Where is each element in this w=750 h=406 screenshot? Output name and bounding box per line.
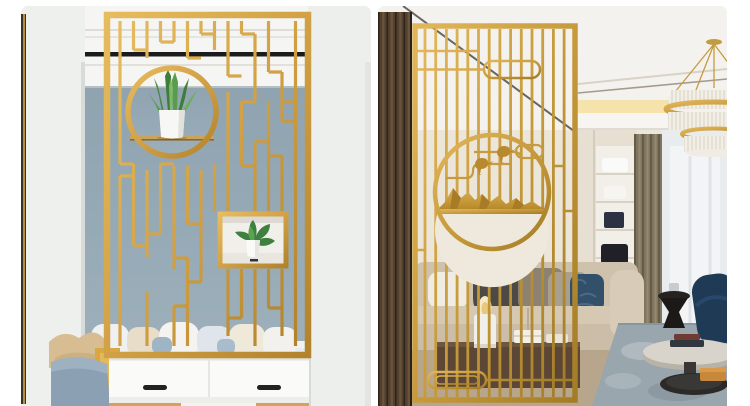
- drawer-handle: [257, 385, 281, 390]
- folded-towels: [602, 158, 628, 172]
- left-photo-bedroom-screen: [21, 6, 371, 406]
- drawer-handle: [143, 385, 167, 390]
- right-photo-scene: [378, 6, 727, 406]
- drawer-cabinet: [109, 358, 309, 406]
- product-photo-pair: [0, 0, 750, 406]
- wood-slat-wall: [378, 12, 412, 406]
- right-photo-livingroom-screen: [378, 6, 727, 406]
- curtain-rail: [57, 52, 309, 57]
- shelf-bag: [601, 244, 628, 264]
- circle-medallion: [128, 68, 216, 158]
- left-photo-scene: [21, 6, 371, 406]
- planter-shadow-box: [220, 214, 286, 266]
- cove-light: [576, 100, 674, 114]
